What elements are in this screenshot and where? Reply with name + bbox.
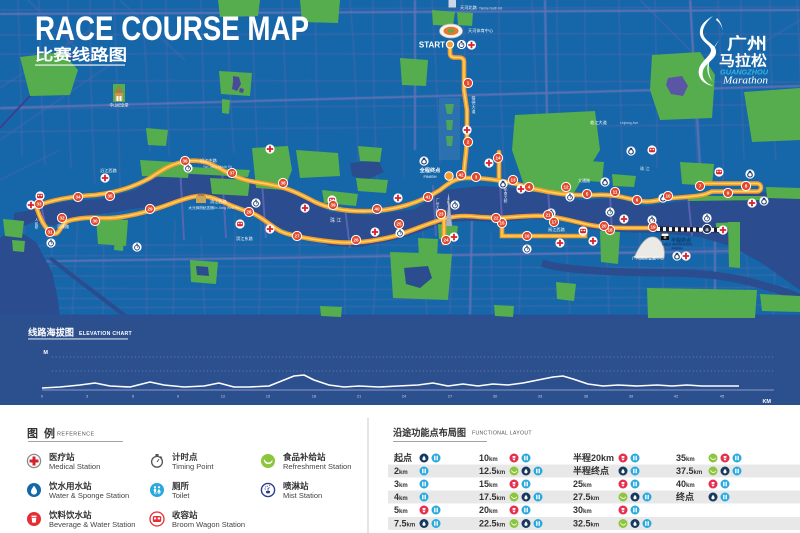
svg-text:13: 13 [510,178,516,183]
svg-text:1: 1 [467,81,470,86]
svg-text:40: 40 [374,207,380,212]
svg-text:天河北路: 天河北路 [460,4,478,11]
svg-text:ELEVATION CHART: ELEVATION CHART [79,331,133,337]
svg-text:32: 32 [59,216,65,221]
svg-text:REFERENCE: REFERENCE [57,432,95,438]
svg-text:42: 42 [674,394,679,399]
svg-text:沿江中路: 沿江中路 [200,157,218,164]
svg-text:29: 29 [147,207,153,212]
svg-text:36: 36 [584,394,589,399]
svg-text:45: 45 [720,394,725,399]
svg-text:28: 28 [246,210,252,215]
svg-text:Refreshment Station: Refreshment Station [283,462,351,471]
svg-text:41: 41 [425,195,431,200]
svg-text:38: 38 [280,181,286,186]
svg-text:大通路: 大通路 [578,177,590,183]
svg-text:15: 15 [499,221,505,226]
svg-text:Broom Wagon Station: Broom Wagon Station [172,520,245,529]
svg-text:饮水用水站: 饮水用水站 [48,481,92,491]
svg-text:10: 10 [665,194,671,199]
svg-text:半程20km: 半程20km [573,452,614,463]
svg-text:39: 39 [629,394,634,399]
svg-text:27: 27 [294,234,300,239]
svg-text:Timing Point: Timing Point [172,462,214,471]
svg-text:Bin Jiang West Rd: Bin Jiang West Rd [213,206,239,210]
svg-text:39: 39 [330,203,336,208]
svg-text:14: 14 [495,156,501,161]
svg-text:Medical Station: Medical Station [49,462,100,471]
svg-text:半程终点: 半程终点 [573,465,609,476]
svg-text:Toilet: Toilet [172,491,190,500]
svg-text:30: 30 [493,394,498,399]
svg-text:7: 7 [699,184,702,189]
svg-text:24: 24 [402,394,407,399]
svg-text:猎德大道: 猎德大道 [472,95,477,115]
svg-text:饮料饮水站: 饮料饮水站 [48,510,92,520]
svg-text:42: 42 [458,173,464,178]
svg-text:Marathon: Marathon [722,76,768,87]
svg-text:Yan Jiang Middle Rd: Yan Jiang Middle Rd [203,165,232,169]
svg-text:8: 8 [745,184,748,189]
svg-text:12: 12 [563,185,569,190]
svg-text:FINISH: FINISH [423,174,436,179]
svg-text:3: 3 [475,175,478,180]
svg-text:27: 27 [448,394,453,399]
svg-text:滨江西路: 滨江西路 [210,198,228,205]
svg-text:终点: 终点 [675,491,694,502]
svg-text:珠 江: 珠 江 [330,217,341,224]
svg-text:15: 15 [266,394,271,399]
svg-text:中山纪念堂: 中山纪念堂 [110,103,129,108]
svg-text:沿江西路: 沿江西路 [100,167,118,174]
svg-text:33: 33 [36,202,42,207]
svg-text:线路海拔图: 线路海拔图 [28,327,74,338]
svg-text:滨康路: 滨康路 [57,223,69,229]
svg-text:人民桥: 人民桥 [34,217,39,229]
svg-text:33: 33 [538,394,543,399]
svg-text:24: 24 [443,238,449,243]
svg-text:医疗站: 医疗站 [49,452,75,462]
svg-text:广州: 广州 [727,34,767,53]
svg-text:17: 17 [551,220,557,225]
svg-text:RACE COURSE MAP: RACE COURSE MAP [35,10,309,48]
svg-text:临江大道: 临江大道 [590,119,608,126]
svg-text:Linjiang Ave: Linjiang Ave [620,121,638,125]
svg-text:半: 半 [705,227,709,232]
svg-text:厕所: 厕所 [172,481,190,491]
svg-text:广州国际会展中心: 广州国际会展中心 [632,255,664,261]
svg-text:华南大桥: 华南大桥 [503,187,508,203]
svg-text:天河体育中心: 天河体育中心 [468,27,494,34]
svg-text:11: 11 [613,190,618,195]
svg-text:大元帅府纪念馆: 大元帅府纪念馆 [188,205,214,210]
svg-text:马拉松: 马拉松 [719,52,768,70]
svg-text:16: 16 [524,234,530,239]
svg-text:5: 5 [586,192,589,197]
svg-text:Mist Station: Mist Station [283,491,322,500]
svg-text:计时点: 计时点 [172,452,198,462]
svg-text:25: 25 [396,222,402,227]
svg-text:30: 30 [92,219,98,224]
svg-text:20: 20 [601,224,607,229]
svg-text:珠 江: 珠 江 [640,165,650,172]
svg-text:FINISH: FINISH [671,247,683,251]
svg-text:比赛线路图: 比赛线路图 [35,45,127,64]
svg-text:滨江东路: 滨江东路 [236,235,254,242]
svg-text:34: 34 [75,195,81,200]
svg-text:12: 12 [221,394,226,399]
svg-text:18: 18 [312,394,317,399]
svg-text:35: 35 [107,194,113,199]
svg-text:Beverage & Water Station: Beverage & Water Station [49,520,135,529]
svg-text:食品补给站: 食品补给站 [283,452,326,462]
svg-text:START: START [419,41,445,50]
svg-text:Water & Sponge Station: Water & Sponge Station [49,491,129,500]
svg-text:M: M [43,350,48,356]
svg-text:4: 4 [528,185,531,190]
svg-text:21: 21 [545,213,551,218]
svg-text:阅江西路: 阅江西路 [548,226,566,233]
svg-text:6: 6 [636,198,639,203]
svg-text:喷淋站: 喷淋站 [283,481,309,491]
svg-text:37: 37 [229,171,235,176]
svg-text:全程终点: 全程终点 [419,166,442,174]
svg-text:26: 26 [353,238,359,243]
svg-text:36: 36 [182,159,188,164]
svg-text:沿途功能点布局图: 沿途功能点布局图 [393,427,466,439]
svg-text:31: 31 [47,230,53,235]
svg-text:Tianhe North Rd: Tianhe North Rd [479,7,502,11]
svg-text:起点: 起点 [393,452,412,463]
svg-text:19: 19 [650,225,656,230]
svg-text:收容站: 收容站 [172,510,198,520]
svg-text:22: 22 [493,216,499,221]
svg-text:FUNCTIONAL LAYOUT: FUNCTIONAL LAYOUT [472,431,532,437]
svg-text:9: 9 [727,191,730,196]
svg-text:21: 21 [357,394,362,399]
svg-text:2: 2 [467,140,470,145]
svg-text:23: 23 [438,212,444,217]
